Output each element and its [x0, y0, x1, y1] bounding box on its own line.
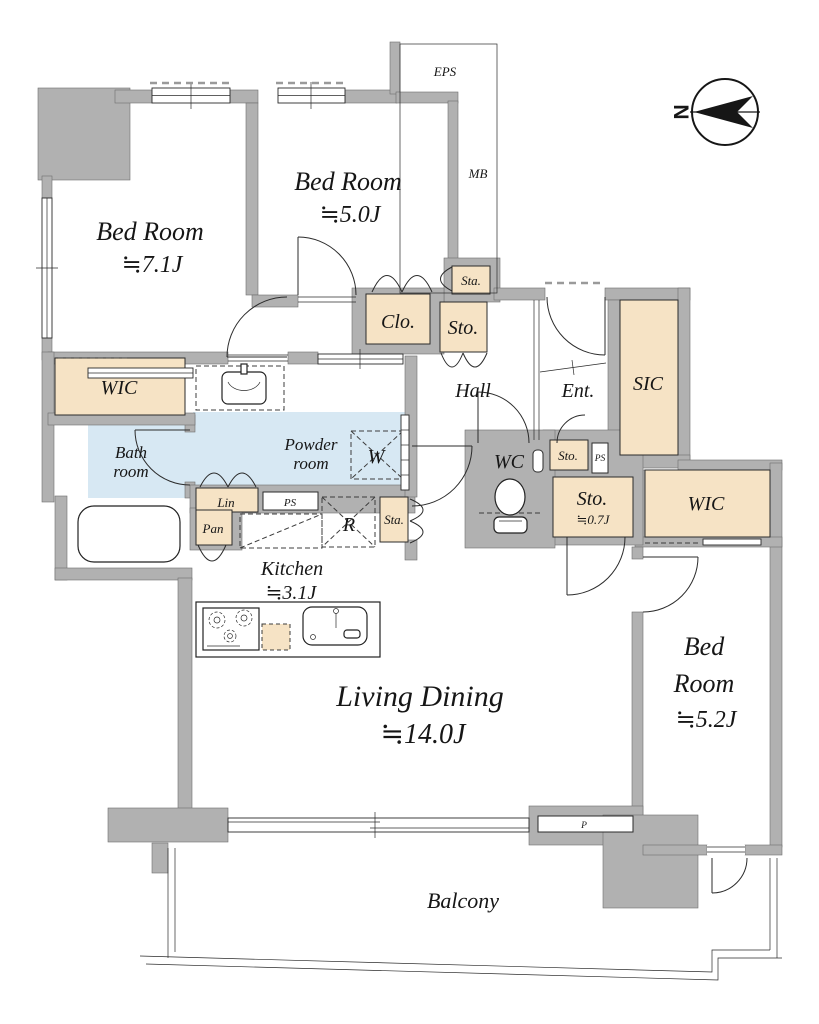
stove-icon [203, 608, 259, 650]
wic-west-label: WIC [101, 377, 138, 399]
bath-room-label-2: room [113, 462, 148, 481]
pantry-label: Pan [202, 521, 224, 536]
door-bedroom-east [643, 557, 698, 612]
kitchen-counter [196, 602, 380, 657]
compass-north-label: N [669, 104, 692, 119]
door-storage-hall-bifold [441, 353, 487, 367]
pocket-door-powder [401, 415, 409, 490]
storage-entrance-label: Sto. [558, 448, 578, 463]
storage-hall-label: Sto. [448, 317, 479, 339]
entrance-label: Ent. [561, 380, 595, 402]
kitchen-size: ≒3.1J [266, 582, 318, 604]
pipe-duct-label: P [580, 821, 587, 831]
bedroom-east-label-2: Room [673, 669, 735, 698]
powder-room-label-1: Powder [284, 435, 338, 454]
wic-east-label: WIC [688, 493, 725, 515]
bathtub-icon [78, 506, 180, 562]
bedroom-north-label: Bed Room [294, 167, 402, 196]
floor-plan-drawing: N Bed Room ≒7.1J Bed Room ≒5.0J Bed Room… [0, 0, 819, 1024]
window-living-south [228, 812, 529, 838]
window-bedroom-east-top [703, 539, 761, 545]
storage-07-label: Sto. [577, 488, 608, 510]
bedroom-east-label-1: Bed [684, 632, 725, 661]
door-entrance [547, 297, 605, 355]
closet-label: Clo. [381, 311, 415, 333]
living-dining-label: Living Dining [335, 680, 504, 713]
bedroom-east-size: ≒5.2J [676, 707, 738, 733]
window-bedroom-north-top [278, 82, 345, 109]
counter-storage-dash [262, 624, 290, 650]
door-storage-07 [567, 537, 625, 595]
bedroom-north-size: ≒5.0J [320, 202, 382, 228]
door-hall-living [412, 446, 472, 506]
kitchen-cupboard-space [240, 514, 322, 548]
wc-label: WC [494, 451, 525, 473]
washbasin-icon [222, 364, 266, 404]
floor-plan-page: N Bed Room ≒7.1J Bed Room ≒5.0J Bed Room… [0, 0, 819, 1024]
window-bedroom-west-top [152, 82, 230, 109]
sic-label: SIC [633, 373, 664, 395]
door-bedroom-east-balcony [712, 858, 747, 893]
powder-room-label-2: room [293, 454, 328, 473]
bedroom-west-size: ≒7.1J [122, 252, 184, 278]
living-dining-size: ≒14.0J [381, 719, 467, 750]
door-bedroom-north [298, 237, 356, 295]
eps-label: EPS [433, 64, 457, 79]
mb-label: MB [468, 166, 488, 181]
storage-kitchen-label: Sta. [384, 512, 404, 527]
refrigerator-label: R [342, 514, 355, 536]
kitchen-label: Kitchen [260, 558, 323, 580]
compass: N [669, 79, 760, 145]
bedroom-west-label: Bed Room [96, 217, 204, 246]
balcony-label: Balcony [427, 888, 499, 913]
storage-07-size: ≒0.7J [577, 512, 611, 527]
linen-label: Lin [216, 495, 234, 510]
hall-label: Hall [454, 380, 491, 402]
toilet-icon [494, 479, 527, 533]
wc-window-slot [533, 450, 543, 472]
washer-label: W [368, 446, 387, 468]
sink-icon [303, 607, 367, 645]
storage-north-label: Sta. [461, 273, 481, 288]
window-bedroom-west-left [36, 198, 58, 338]
ps-entrance-label: PS [594, 454, 606, 464]
bath-room-label-1: Bath [115, 443, 147, 462]
threshold-bedroom-east-balcony [707, 845, 745, 855]
ps-powder-label: PS [283, 497, 297, 509]
